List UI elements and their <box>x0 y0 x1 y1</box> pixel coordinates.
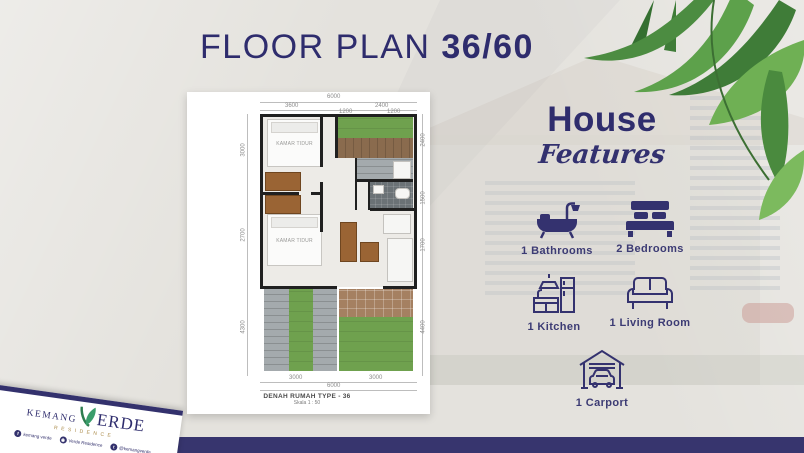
cabinet <box>383 214 411 234</box>
social-facebook: f kemang verde <box>14 430 52 442</box>
feature-bathrooms: 1 Bathrooms <box>514 200 600 257</box>
room-label: KAMAR TIDUR <box>268 238 321 244</box>
carport-grass-strip <box>289 289 313 371</box>
kitchen-counter <box>340 222 357 262</box>
feature-carport: 1 Carport <box>557 348 647 409</box>
dim-label: 4300 <box>241 320 247 333</box>
dimension-line <box>260 390 417 391</box>
floor-plan-card: 6000 3600 2400 1200 1200 3000 2700 4300 … <box>187 92 430 414</box>
dim-label: 4400 <box>421 320 427 333</box>
plan-caption: DENAH RUMAH TYPE - 36 Skala 1 : 50 <box>227 393 387 406</box>
bed-pillow <box>271 122 318 133</box>
house-features-panel: House Features 1 Bathrooms 2 Bedrooms <box>500 100 704 415</box>
wall-segment <box>311 192 323 195</box>
wall-segment <box>414 114 417 289</box>
wall-segment <box>260 114 417 117</box>
dim-label: 6000 <box>327 383 340 389</box>
features-heading: House <box>500 100 704 140</box>
ghost-car <box>742 303 794 323</box>
facebook-icon: f <box>14 430 22 438</box>
feature-label: 1 Living Room <box>600 317 700 329</box>
social-handle: kemang verde <box>23 432 52 441</box>
dim-label: 1500 <box>421 191 427 204</box>
title-bold: 36/60 <box>441 28 534 66</box>
toilet <box>395 188 410 199</box>
leaf-v-icon <box>78 406 97 430</box>
plan-caption-title: DENAH RUMAH TYPE - 36 <box>227 393 387 400</box>
coffee-table <box>360 242 379 262</box>
feature-label: 1 Carport <box>557 397 647 409</box>
wardrobe <box>265 195 301 214</box>
instagram-icon: ◉ <box>59 436 67 444</box>
dim-label: 3000 <box>289 375 302 381</box>
feature-label: 1 Kitchen <box>508 321 600 333</box>
wall-segment <box>320 182 323 232</box>
wall-segment <box>320 117 323 167</box>
social-handle: @kemangverde <box>119 445 151 453</box>
wardrobe <box>265 172 301 191</box>
title-regular: FLOOR PLAN <box>200 28 430 66</box>
dimension-line <box>247 114 248 376</box>
dim-label: 1700 <box>421 238 427 251</box>
feature-bedrooms: 2 Bedrooms <box>604 200 696 255</box>
rear-garden <box>338 117 413 138</box>
wall-segment <box>355 179 413 182</box>
sink <box>373 185 384 194</box>
bed-icon <box>626 200 674 238</box>
kitchen-icon <box>531 272 577 316</box>
washing-machine <box>393 161 411 179</box>
wall-segment <box>355 158 357 210</box>
twitter-icon: t <box>110 443 118 451</box>
dimension-line <box>260 102 417 103</box>
dim-label: 2400 <box>421 133 427 146</box>
social-handle: Verde Residence <box>68 438 103 448</box>
dim-label: 2700 <box>241 228 247 241</box>
social-instagram: ◉ Verde Residence <box>59 436 103 449</box>
dim-label: 3000 <box>369 375 382 381</box>
wall-segment <box>260 114 263 289</box>
feature-label: 2 Bedrooms <box>604 243 696 255</box>
sofa-icon <box>624 272 676 312</box>
feature-living-room: 1 Living Room <box>600 272 700 329</box>
bed-pillow <box>271 217 318 228</box>
bathtub-icon <box>534 200 580 240</box>
dim-label: 6000 <box>327 94 340 100</box>
features-subheading: Features <box>498 140 705 170</box>
feature-kitchen: 1 Kitchen <box>508 272 600 333</box>
bed: KAMAR TIDUR <box>267 119 322 167</box>
logo-card: KEMANG ERDE RESIDENCE f kemang verde ◉ V… <box>0 383 183 453</box>
plan-caption-scale: Skala 1 : 50 <box>227 400 387 406</box>
terrace <box>339 289 413 317</box>
feature-label: 1 Bathrooms <box>514 245 600 257</box>
dim-label: 3600 <box>285 103 298 109</box>
wall-segment <box>368 182 370 210</box>
sofa <box>387 238 413 282</box>
marketing-slide: FLOOR PLAN 36/60 6000 3600 2400 1200 120… <box>0 0 804 453</box>
social-twitter: t @kemangverde <box>110 443 151 453</box>
carport-icon <box>577 348 627 392</box>
dim-label: 3000 <box>241 143 247 156</box>
room-label: KAMAR TIDUR <box>268 141 321 147</box>
front-yard <box>339 317 413 371</box>
rear-deck <box>338 138 413 158</box>
wall-segment <box>335 117 338 158</box>
wall-segment <box>370 208 414 211</box>
page-title: FLOOR PLAN 36/60 <box>0 28 734 67</box>
wall-segment <box>263 192 299 195</box>
bed: KAMAR TIDUR <box>267 214 322 266</box>
